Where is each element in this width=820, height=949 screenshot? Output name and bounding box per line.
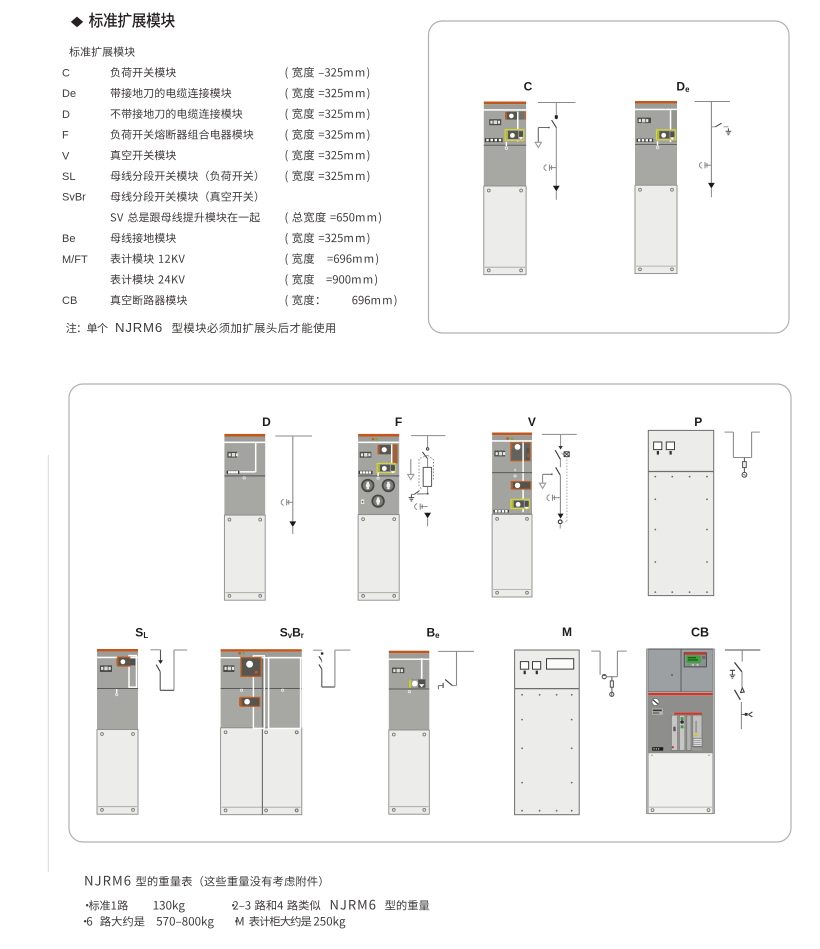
svg-text:CB: CB (691, 626, 709, 640)
svg-text:D: D (262, 415, 271, 429)
svg-text:Be: Be (62, 233, 75, 245)
svg-text:NJRM6: NJRM6 (115, 320, 163, 335)
svg-text:CB: CB (62, 295, 77, 307)
svg-text:De: De (62, 88, 76, 100)
svg-text:SvBr: SvBr (280, 626, 304, 641)
svg-text:C: C (62, 68, 70, 80)
svg-text:C: C (524, 80, 533, 94)
svg-text:F: F (395, 415, 402, 429)
svg-text:M/FT: M/FT (62, 254, 88, 266)
svg-text:V: V (62, 150, 70, 162)
svg-text:V: V (528, 415, 536, 429)
svg-text:D: D (62, 109, 70, 121)
svg-text:M: M (562, 625, 572, 639)
svg-text:SL: SL (62, 171, 75, 183)
svg-text:SvBr: SvBr (62, 192, 86, 204)
svg-text:P: P (694, 415, 702, 429)
svg-text:F: F (62, 130, 69, 142)
